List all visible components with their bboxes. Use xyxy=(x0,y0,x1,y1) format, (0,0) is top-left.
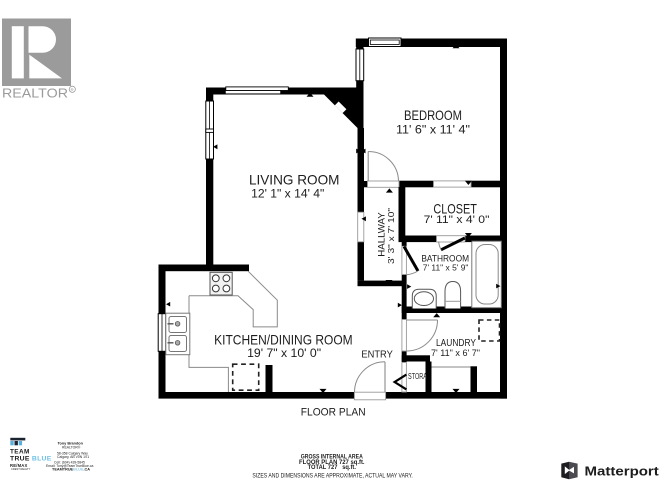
svg-text:KITCHEN/DINING ROOM: KITCHEN/DINING ROOM xyxy=(214,332,353,348)
svg-text:LIVING ROOM: LIVING ROOM xyxy=(249,171,340,187)
svg-text:TOTAL 727 sq.ft.: TOTAL 727 sq.ft. xyxy=(308,464,356,471)
svg-text:TEAMTRUEBLUE.CA: TEAMTRUEBLUE.CA xyxy=(52,468,90,472)
svg-text:REALTOR: REALTOR xyxy=(2,86,68,100)
svg-text:Matterport: Matterport xyxy=(585,463,660,478)
svg-text:TRUE BLUE: TRUE BLUE xyxy=(10,455,52,462)
svg-text:STORA: STORA xyxy=(408,372,428,381)
svg-text:REALTOR®: REALTOR® xyxy=(62,445,81,449)
svg-text:19' 7" x 10' 0": 19' 7" x 10' 0" xyxy=(247,347,321,360)
svg-text:BATHROOM: BATHROOM xyxy=(421,253,469,263)
svg-text:7' 11" x 4' 0": 7' 11" x 4' 0" xyxy=(424,214,490,226)
svg-text:7' 11" x 5' 9": 7' 11" x 5' 9" xyxy=(423,263,469,272)
svg-text:11' 6" x 11' 4": 11' 6" x 11' 4" xyxy=(396,124,470,137)
svg-text:CREST REALTY: CREST REALTY xyxy=(11,467,31,471)
svg-text:BEDROOM: BEDROOM xyxy=(404,107,462,123)
svg-text:3' 3" x 7' 10": 3' 3" x 7' 10" xyxy=(386,208,396,264)
svg-text:FLOOR PLAN: FLOOR PLAN xyxy=(301,407,366,419)
svg-text:ENTRY: ENTRY xyxy=(361,349,393,360)
svg-text:SIZES AND DIMENSIONS ARE APPRO: SIZES AND DIMENSIONS ARE APPROXIMATE, AC… xyxy=(252,473,413,480)
svg-text:Calgary, AB V0N 1V1: Calgary, AB V0N 1V1 xyxy=(57,455,89,459)
svg-text:12' 1" x 14' 4": 12' 1" x 14' 4" xyxy=(251,187,324,200)
svg-text:7' 11" x 6' 7": 7' 11" x 6' 7" xyxy=(431,348,480,358)
